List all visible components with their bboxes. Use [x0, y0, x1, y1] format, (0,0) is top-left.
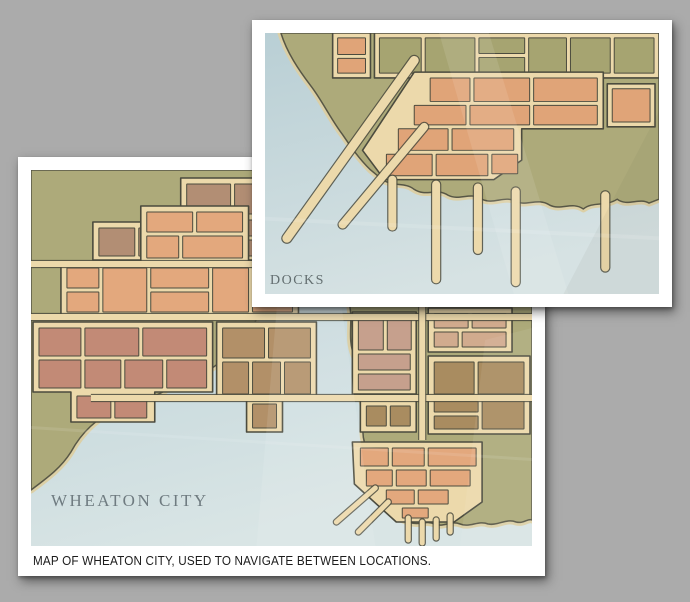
docks-map-art: [265, 33, 659, 294]
docks-map-card[interactable]: DOCKS: [252, 20, 672, 307]
map-caption: MAP OF WHEATON CITY, USED TO NAVIGATE BE…: [33, 548, 431, 574]
docks-map[interactable]: [265, 33, 659, 294]
page-background: WHEATON CITY MAP OF WHEATON CITY, USED T…: [0, 0, 690, 602]
